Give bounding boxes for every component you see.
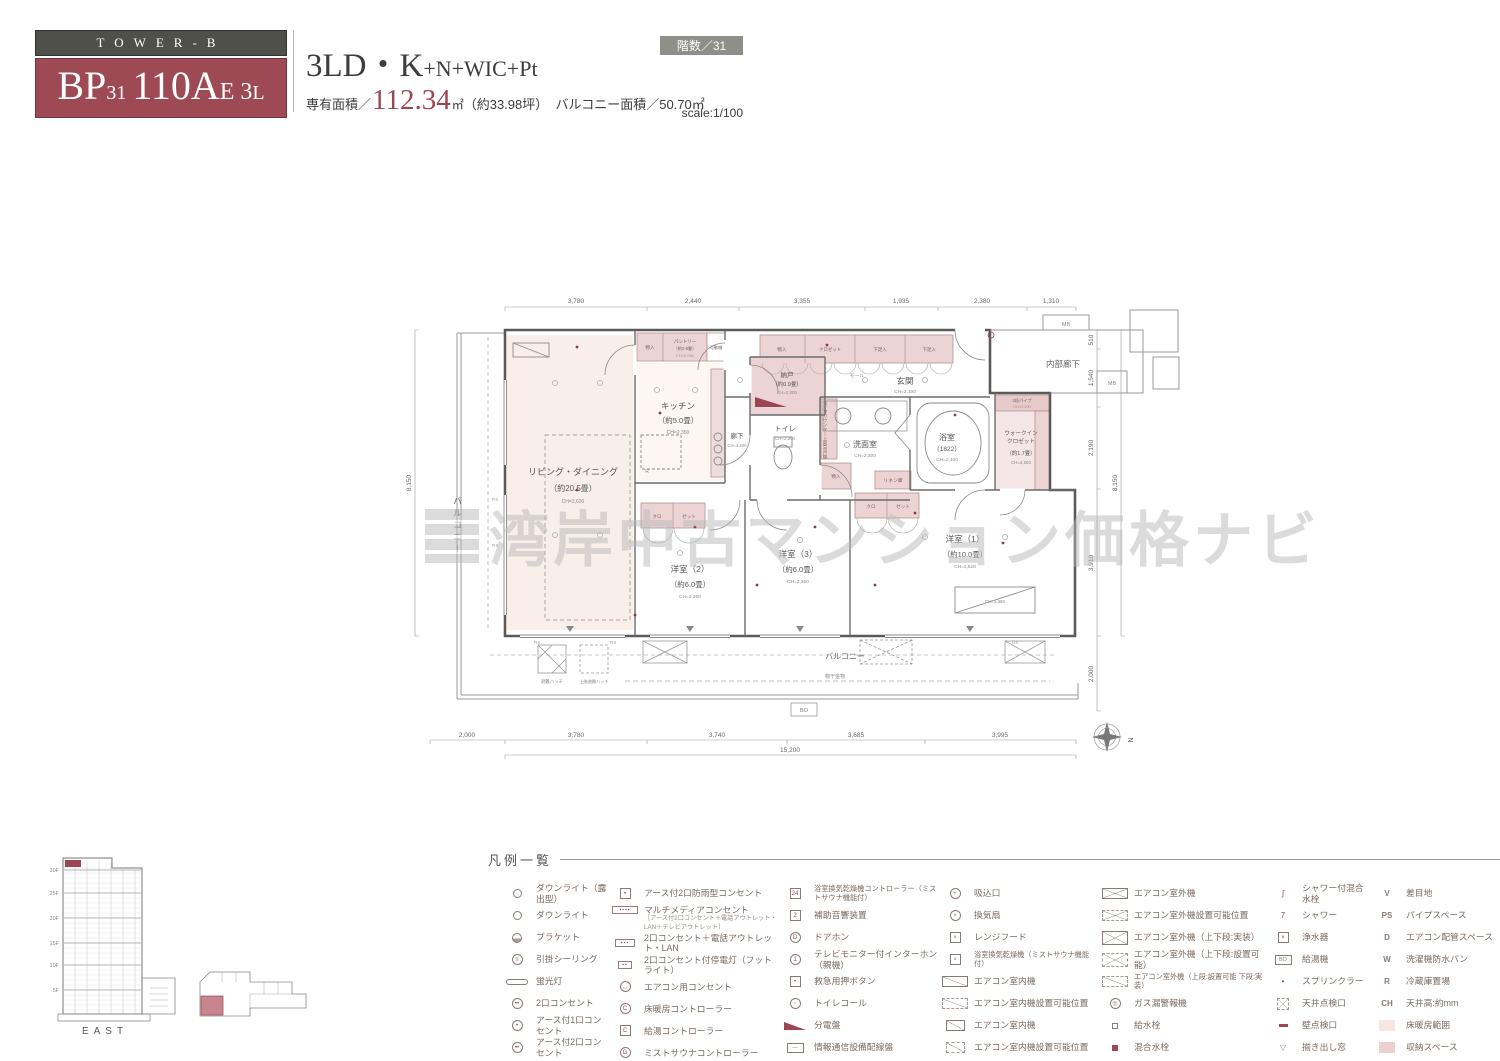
legend-item: エアコン室内機設置可能位置	[940, 1037, 1098, 1058]
room-ch-bed3: CH=2,350	[787, 579, 809, 585]
legend-symbol-icon	[1100, 910, 1130, 921]
legend-symbol-icon: 1	[780, 954, 810, 965]
legend-symbol-icon	[940, 1042, 970, 1053]
legend-label: ダウンライト	[536, 910, 608, 920]
dim-right: 3,910	[1088, 554, 1095, 571]
legend-label: ミストサウナコントローラー	[644, 1048, 778, 1058]
legend-symbol-icon	[780, 1022, 810, 1030]
legend-symbol-icon	[502, 933, 532, 943]
legend-label: ダウンライト（露出型）	[536, 883, 608, 903]
room-size-bath: （1822）	[933, 445, 960, 453]
legend-item: +吸込口	[940, 883, 1098, 904]
legend-item: ×換気扇	[940, 905, 1098, 926]
legend-item: 蛍光灯	[502, 971, 608, 992]
legend-label: 2口コンセント	[536, 998, 608, 1008]
elevation-floor-lines	[64, 868, 141, 1010]
legend-label: 分電盤	[814, 1020, 938, 1030]
legend-item: C給湯コントローラー	[610, 1020, 778, 1041]
legend-symbol-icon: ◦	[780, 998, 810, 1009]
legend-label: 2口コンセント付停電灯（フットライト）	[644, 955, 778, 975]
north-label: N	[1126, 737, 1133, 742]
legend-symbol-icon: CH	[1372, 999, 1402, 1008]
scale-note: scale:1/100	[640, 106, 743, 120]
pantry-size: （約0.8畳）	[674, 345, 697, 352]
fix-label: FIX	[534, 640, 541, 645]
legend-label: 混合水栓	[1134, 1042, 1266, 1052]
legend-item: 床暖房範囲	[1372, 1015, 1494, 1036]
unit-highlight	[65, 860, 81, 867]
legend-label: 吸込口	[974, 888, 1098, 898]
legend-item: ×浄水器	[1268, 927, 1370, 948]
legend-label: テレビモニター付インターホン（親機）	[814, 949, 938, 969]
pipe-label: 2段パイプ	[1012, 397, 1032, 404]
legend-symbol-icon: V	[1372, 889, 1402, 898]
dim-bottom: 2,000	[459, 732, 476, 739]
legend-label: 換気扇	[974, 910, 1098, 920]
legend-symbol-icon	[940, 998, 970, 1009]
legend-label: 冷蔵庫置場	[1406, 976, 1494, 986]
legend-symbol-icon	[502, 889, 532, 898]
legend-column: V差目地PSパイプスペースDエアコン配管スペースW洗濯機防水パンR冷蔵庫置場CH…	[1372, 883, 1494, 1059]
legend-column: ダウンライト（露出型）ダウンライトブラケット≡引掛シーリング蛍光灯••2口コンセ…	[502, 883, 608, 1059]
floor-label: 25F	[50, 891, 60, 897]
floor-label: 5F	[53, 988, 60, 994]
floor-badge: 階数／31	[660, 36, 743, 55]
legend-item: 収納スペース	[1372, 1037, 1494, 1058]
legend-symbol-icon	[1100, 888, 1130, 899]
legend-symbol-icon: ×	[940, 954, 970, 965]
floor-plan: リビング・ダイニング （約20.5畳） CH=2,620 キッチン （約5.0畳…	[395, 285, 1185, 785]
plan-type-sub: +N+WIC+Pt	[423, 56, 537, 81]
legend-item: ▽揃き出し窓	[1268, 1037, 1370, 1058]
legend-label: 給水栓	[1134, 1020, 1266, 1030]
legend-label: 2口コンセント＋電話アウトレット・LAN	[644, 933, 778, 953]
legend-symbol-icon: •	[610, 888, 640, 899]
legend-label: ドアホン	[814, 932, 938, 942]
legend-title: 凡例一覧	[488, 850, 552, 869]
legend-item: Dエアコン配管スペース	[1372, 927, 1494, 948]
dim-top: 3,355	[794, 298, 811, 305]
unit-code-sub: 31	[106, 82, 126, 104]
compass-icon	[1092, 722, 1122, 752]
legend-symbol-icon: ×	[940, 910, 970, 921]
legend-symbol-icon: D	[780, 932, 810, 943]
legend-label: シャワー付混合水栓	[1302, 883, 1370, 903]
room-ch-entrance: CH=2,100	[894, 389, 916, 395]
legend-item: ••2口コンセント	[502, 993, 608, 1014]
legend-symbol-icon: C	[610, 1003, 640, 1014]
room-ch-kitchen: CH=2,350	[667, 430, 690, 436]
legend-symbol-icon: G	[610, 1047, 640, 1058]
mb-label: MB	[1062, 322, 1071, 328]
area-value: 112.34	[372, 84, 451, 116]
legend-item: エアコン室内機設置可能位置	[940, 993, 1098, 1014]
legend-item: R冷蔵庫置場	[1372, 971, 1494, 992]
legend-label: 蛍光灯	[536, 976, 608, 986]
fix-label: FIX	[492, 497, 499, 502]
plan-type: 3LD・K+N+WIC+Pt	[306, 38, 538, 86]
shelf-label: 可動棚	[710, 344, 723, 351]
unit-code-part: 3	[240, 79, 252, 105]
legend-symbol-icon: 2	[780, 910, 810, 921]
legend-item: ダウンライト	[502, 905, 608, 926]
legend-label: シャワー	[1302, 910, 1370, 920]
room-ch-wash: CH=2,200	[854, 453, 876, 459]
legend-symbol-icon	[1372, 1020, 1402, 1031]
annex-windows	[150, 988, 168, 1006]
title-block: TOWER-B BP31 110AE 3L	[35, 30, 287, 118]
room-ch-nando: CH=2,200	[777, 390, 797, 395]
legend-symbol-icon: •	[502, 1020, 532, 1031]
legend-item: ≡引掛シーリング	[502, 949, 608, 970]
room-label-wic1: ウォークイン	[1004, 429, 1038, 437]
room-ch-bed2: CH=2,350	[679, 594, 701, 600]
room-ch-wic: CH=2,500	[1011, 460, 1031, 465]
legend-item: —情報通信設備配線盤	[780, 1037, 938, 1058]
room-size-nando: （約0.9畳）	[772, 380, 802, 388]
legend-label: エアコン室外機（上段:設置可能 下段:実装）	[1134, 973, 1266, 990]
legend-label: トイレコール	[814, 998, 938, 1008]
legend-symbol-icon: D	[1372, 933, 1402, 942]
legend-symbol-icon	[1372, 1042, 1402, 1053]
hatch-label: 避難ハッチ	[541, 678, 563, 685]
room-label-wash: 洗面室	[853, 439, 877, 449]
area-unit: ㎡	[452, 98, 464, 112]
legend-label: アース付2口防雨型コンセント	[644, 888, 778, 898]
dim-right: 2,000	[1088, 665, 1095, 682]
legend-item: •スプリンクラー	[1268, 971, 1370, 992]
legend-column: エアコン室外機エアコン室外機設置可能位置エアコン室外機（上下段:実装）エアコン室…	[1100, 883, 1266, 1059]
plan-type-main: 3LD・K	[306, 48, 423, 84]
legend-column: ʃシャワー付混合水栓7シャワー×浄水器BO給湯機•スプリンクラー天井点検口壁点検…	[1268, 883, 1370, 1059]
dim-left: 8,150	[406, 474, 413, 491]
room-label-bed3: 洋室（3）	[779, 549, 818, 559]
room-ch-bed1: CH=2,620	[954, 564, 976, 570]
dim-top: 2,440	[685, 298, 702, 305]
direction-label: EAST	[82, 1026, 128, 1037]
legend-item: ▪▪2口コンセント付停電灯（フットライト）	[610, 954, 778, 975]
legend-label: 救急用押ボタン	[814, 976, 938, 986]
legend-item: 壁点検口	[1268, 1015, 1370, 1036]
dim-bottom: 3,995	[992, 732, 1009, 739]
legend-item: ʃシャワー付混合水栓	[1268, 883, 1370, 904]
bo-label: BO	[800, 708, 809, 714]
legend-label: エアコン室外機（上下段:設置可能）	[1134, 949, 1266, 969]
legend-item: ◡エアコン用コンセント	[610, 976, 778, 997]
legend-item: ×浴室換気乾燥機（ミストサウナ機能付）	[940, 949, 1098, 970]
legend-symbol-icon: ▪▪▪▪	[610, 906, 640, 914]
legend-symbol-icon: W	[1372, 955, 1402, 964]
legend-item: ダウンライト（露出型）	[502, 883, 608, 904]
dim-top: 2,380	[974, 298, 991, 305]
legend-item: ×レンジフード	[940, 927, 1098, 948]
closet-label: 物入	[831, 473, 841, 480]
legend-item: W洗濯機防水パン	[1372, 949, 1494, 970]
dim-bottom-total: 15,200	[780, 747, 800, 754]
room-label-bath: 浴室	[939, 432, 955, 442]
header-divider	[293, 30, 294, 112]
legend-label: 浄水器	[1302, 932, 1370, 942]
legend-item: エアコン室外機（上下段:設置可能）	[1100, 949, 1266, 970]
legend-item: 分電盤	[780, 1015, 938, 1036]
legend-label: 揃き出し窓	[1302, 1042, 1370, 1052]
legend-item: 混合水栓	[1100, 1037, 1266, 1058]
legend-item: 24浴室換気乾燥機コントローラー（ミストサウナ機能付）	[780, 883, 938, 904]
closet-label: ゼット	[682, 513, 696, 519]
legend-label: パイプスペース	[1406, 910, 1494, 920]
legend-item: Dドアホン	[780, 927, 938, 948]
legend-item: Gミストサウナコントローラー	[610, 1042, 778, 1061]
room-size-bed1: （約10.0畳）	[943, 549, 988, 559]
building-base	[58, 1014, 150, 1021]
legend-item: •アース付2口防雨型コンセント	[610, 883, 778, 904]
legend-symbol-icon: ••	[502, 998, 532, 1009]
fridge-label: R	[645, 469, 649, 475]
legend-item: •アース付1口コンセント	[502, 1015, 608, 1036]
dim-right: 1,540	[1088, 369, 1095, 386]
room-ch-toilet: CH=2,200	[775, 436, 795, 441]
legend-columns: ダウンライト（露出型）ダウンライトブラケット≡引掛シーリング蛍光灯••2口コンセ…	[488, 869, 1500, 1049]
legend-label: 浴室換気乾燥機コントローラー（ミストサウナ機能付）	[814, 885, 938, 902]
floor-label: 10F	[50, 963, 60, 969]
legend-symbol-icon: ••	[502, 1042, 532, 1053]
dim-top: 1,310	[1043, 298, 1060, 305]
legend-label: エアコン室外機設置可能位置	[1134, 910, 1266, 920]
legend-symbol-icon: PS	[1372, 911, 1402, 920]
dim-bottom: 3,780	[568, 732, 585, 739]
legend-item: エアコン室内機	[940, 1015, 1098, 1036]
legend-label: ブラケット	[536, 932, 608, 942]
legend-label: エアコン室外機（上下段:実装）	[1134, 932, 1266, 942]
dim-top: 1,935	[893, 298, 910, 305]
unit-code-part: BP	[57, 63, 106, 108]
unit-code-sub: E	[220, 79, 235, 105]
legend-symbol-icon: ◎	[1100, 998, 1130, 1009]
legend-label: 情報通信設備配線盤	[814, 1042, 938, 1052]
legend-label: エアコン室内機設置可能位置	[974, 998, 1098, 1008]
legend-symbol-icon	[1268, 1024, 1298, 1027]
room-size-bed2: （約6.0畳）	[670, 579, 710, 589]
legend-label: 浴室換気乾燥機（ミストサウナ機能付）	[974, 951, 1098, 968]
pipe-ch: CH=2,200	[1013, 405, 1030, 409]
legend-symbol-icon: ◡	[610, 981, 640, 992]
room-size-kitchen: （約5.0畳）	[658, 415, 698, 425]
legend-item: 給水栓	[1100, 1015, 1266, 1036]
legend-label: 洗濯機防水パン	[1406, 954, 1494, 964]
linen-label: リネン庫	[883, 477, 902, 484]
legend-label: エアコン配管スペース	[1406, 932, 1494, 942]
legend-symbol-icon: ▪▪	[610, 961, 640, 969]
legend-label: 引掛シーリング	[536, 954, 608, 964]
legend-label: 床暖房範囲	[1406, 1020, 1494, 1030]
legend-item: ブラケット	[502, 927, 608, 948]
hatch-label: 上階避難ハッチ	[579, 678, 608, 685]
legend-item: エアコン室外機	[1100, 883, 1266, 904]
legend-item: ◦トイレコール	[780, 993, 938, 1014]
room-label-wic2: クロゼット	[1007, 437, 1035, 445]
legend-item: CH天井高:約mm	[1372, 993, 1494, 1014]
legend-symbol-icon	[940, 1020, 970, 1031]
closet-label: ゼット	[896, 503, 910, 509]
legend-label: レンジフード	[974, 932, 1098, 942]
room-label-nando: 納戸	[781, 370, 795, 379]
closet-label: 物入	[645, 344, 655, 351]
room-size-bed3: （約6.0畳）	[778, 564, 818, 574]
legend-item: ▪▪▪2口コンセント＋電話アウトレット・LAN	[610, 932, 778, 953]
unit-code: BP31 110AE 3L	[35, 58, 287, 118]
fix-label: FIX	[492, 543, 499, 548]
room-ch-living: CH=2,620	[562, 499, 585, 505]
room-label-bed1: 洋室（1）	[946, 534, 985, 544]
legend-item: ◎ガス漏警報機	[1100, 993, 1266, 1014]
floorplan-sheet: TOWER-B BP31 110AE 3L 3LD・K+N+WIC+Pt 専有面…	[0, 0, 1500, 1061]
laundry-pole-label: 物干金物	[825, 673, 845, 680]
balcony-side-label: バルコニー	[451, 496, 464, 556]
legend-label: 天井高:約mm	[1406, 998, 1494, 1008]
legend-symbol-icon: 7	[1268, 911, 1298, 920]
room-label-bed2: 洋室（2）	[671, 564, 710, 574]
wd-counter-label: W／Dカウンター上部吊戸棚	[822, 401, 828, 461]
legend-item: エアコン室外機設置可能位置	[1100, 905, 1266, 926]
pantry-ch: CH=2,050	[676, 353, 695, 358]
ac-ch-label: CH=2,380	[985, 599, 1005, 604]
balcony-label: バルコニー	[825, 652, 865, 661]
legend-column: 24浴室換気乾燥機コントローラー（ミストサウナ機能付）2補助音響装置Dドアホン1…	[780, 883, 938, 1059]
legend-item: 2補助音響装置	[780, 905, 938, 926]
legend-item: エアコン室内機	[940, 971, 1098, 992]
legend-label: エアコン室外機	[1134, 888, 1266, 898]
legend-item: エアコン室外機（上下段:実装）	[1100, 927, 1266, 948]
legend-symbol-icon: —	[780, 1043, 810, 1053]
legend-label: ガス漏警報機	[1134, 998, 1266, 1008]
legend-rule	[560, 859, 1500, 860]
legend-label: 差目地	[1406, 888, 1494, 898]
legend-label: エアコン室内機設置可能位置	[974, 1042, 1098, 1052]
legend-label: 壁点検口	[1302, 1020, 1370, 1030]
legend-item: エアコン室外機（上段:設置可能 下段:実装）	[1100, 971, 1266, 992]
mall-label: モール	[850, 373, 865, 379]
room-label-toilet: トイレ	[775, 426, 796, 433]
legend-symbol-icon: •	[780, 976, 810, 987]
legend-label: アース付2口コンセント	[536, 1037, 608, 1057]
legend-symbol-icon: ʃ	[1268, 889, 1298, 898]
legend-item: •救急用押ボタン	[780, 971, 938, 992]
legend-symbol-icon: R	[1372, 977, 1402, 986]
legend-symbol-icon	[502, 979, 532, 985]
evacuation-hatch	[538, 645, 608, 673]
legend-symbol-icon	[1100, 1045, 1130, 1051]
legend-label: アース付1口コンセント	[536, 1015, 608, 1035]
legend-symbol-icon	[1100, 953, 1130, 967]
dim-right: 510	[1088, 334, 1095, 345]
legend-symbol-icon: 24	[780, 888, 810, 899]
room-label-living: リビング・ダイニング	[528, 466, 618, 477]
room-label-corridor: 内部廊下	[1046, 359, 1081, 369]
legend-item: 7シャワー	[1268, 905, 1370, 926]
legend-symbol-icon: ▪▪▪	[610, 939, 640, 947]
legend-label: 収納スペース	[1406, 1042, 1494, 1052]
dim-bottom: 3,685	[848, 732, 865, 739]
fix-label: FIX	[1012, 640, 1019, 645]
area-label: 専有面積／	[306, 97, 371, 112]
floor-label: 30F	[50, 868, 60, 874]
legend-item: ••アース付2口コンセント	[502, 1037, 608, 1058]
legend-symbol-icon	[940, 976, 970, 987]
dim-right-total: 8,150	[1112, 474, 1119, 491]
annex-outline	[142, 978, 175, 1014]
building-elevation: 30F 25F 20F 15F 10F 5F EAST	[30, 848, 310, 1058]
legend-label: 床暖房コントローラー	[644, 1004, 778, 1014]
room-size-wic: （約1.7畳）	[1006, 449, 1035, 457]
legend-symbol-icon	[502, 911, 532, 920]
dim-bottom: 3,740	[709, 732, 726, 739]
room-size-living: （約20.5畳）	[549, 483, 597, 493]
legend-symbol-icon: ▽	[1268, 1043, 1298, 1052]
legend-column: •アース付2口防雨型コンセント▪▪▪▪マルチメディアコンセント［アース付2口コン…	[610, 883, 778, 1061]
floor-label: 15F	[50, 941, 60, 947]
room-label-entrance: 玄関	[896, 376, 913, 386]
legend-sublabel: ［アース付2口コンセント＋電話アウトレット・LAN＋テレビアウトレット］	[644, 913, 778, 931]
legend-item: PSパイプスペース	[1372, 905, 1494, 926]
legend-item: ▪▪▪▪マルチメディアコンセント［アース付2口コンセント＋電話アウトレット・LA…	[610, 905, 778, 931]
area-tsubo: （約33.98坪）	[464, 97, 549, 112]
legend-symbol-icon: ×	[1268, 932, 1298, 943]
dim-right: 2,190	[1088, 439, 1095, 456]
closet-label: クロゼット	[819, 346, 841, 353]
legend-label: エアコン室内機	[974, 976, 1098, 986]
room-ch-bath: CH=2,100	[936, 457, 958, 463]
mb-label: MB	[1108, 381, 1117, 387]
tower-name: TOWER-B	[35, 30, 287, 56]
legend-label: エアコン用コンセント	[644, 982, 778, 992]
room-label-kitchen: キッチン	[661, 401, 695, 411]
legend-item: 1テレビモニター付インターホン（親機）	[780, 949, 938, 970]
legend-column: +吸込口×換気扇×レンジフード×浴室換気乾燥機（ミストサウナ機能付）エアコン室内…	[940, 883, 1098, 1059]
legend-symbol-icon	[1100, 1023, 1130, 1029]
fix-label: FIX	[610, 640, 617, 645]
legend-symbol-icon	[1268, 998, 1298, 1010]
room-ch-hall: CH=2,200	[728, 443, 748, 448]
legend: 凡例一覧 ダウンライト（露出型）ダウンライトブラケット≡引掛シーリング蛍光灯••…	[488, 850, 1500, 1055]
legend-label: 天井点検口	[1302, 998, 1370, 1008]
legend-symbol-icon: ≡	[502, 954, 532, 965]
legend-label: エアコン室内機	[974, 1020, 1098, 1030]
common-corridor	[990, 310, 1179, 393]
legend-symbol-icon: +	[940, 888, 970, 899]
floor-label: 20F	[50, 916, 60, 922]
legend-symbol-icon: BO	[1268, 955, 1298, 965]
legend-symbol-icon: ×	[940, 932, 970, 943]
legend-label: 給湯機	[1302, 954, 1370, 964]
legend-label: 補助音響装置	[814, 910, 938, 920]
legend-symbol-icon	[1100, 931, 1130, 945]
key-plan	[200, 972, 310, 1016]
legend-label: スプリンクラー	[1302, 976, 1370, 986]
dim-top: 3,780	[568, 298, 585, 305]
pantry-label: パントリー	[674, 339, 696, 344]
legend-item: BO給湯機	[1268, 949, 1370, 970]
legend-symbol-icon	[1100, 976, 1130, 987]
key-plan-unit	[201, 996, 223, 1015]
legend-label: 給湯コントローラー	[644, 1026, 778, 1036]
unit-code-part: 110A	[132, 63, 219, 108]
room-label-hall: 廊下	[731, 431, 745, 440]
legend-symbol-icon: •	[1268, 977, 1298, 986]
unit-code-sub: L	[252, 82, 264, 104]
legend-item: 天井点検口	[1268, 993, 1370, 1014]
closet-label: 物入	[777, 346, 787, 353]
legend-item: V差目地	[1372, 883, 1494, 904]
